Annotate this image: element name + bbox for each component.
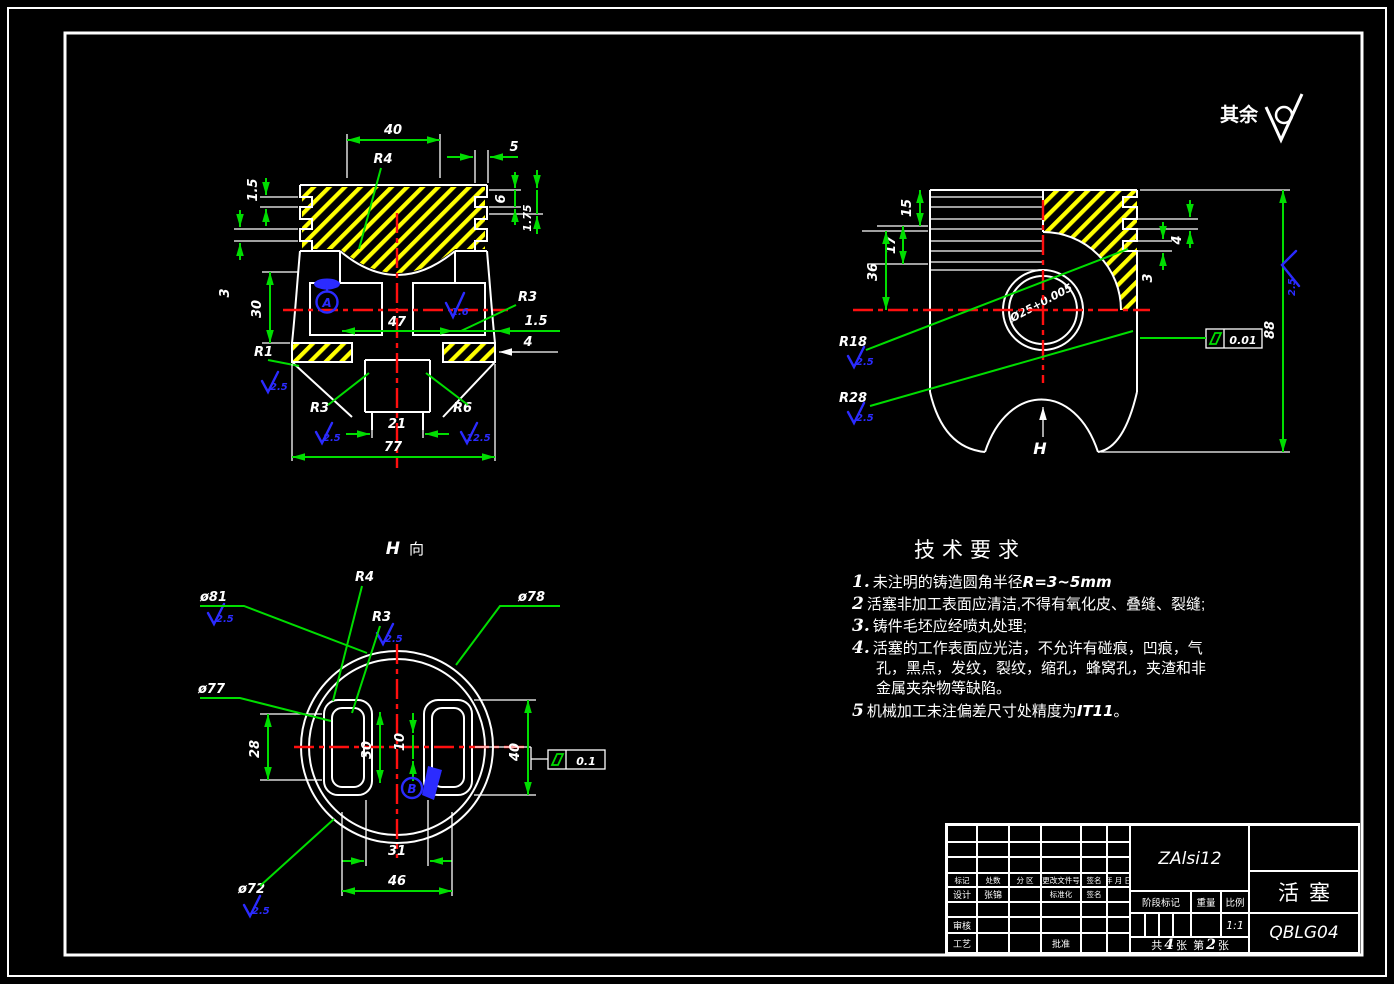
- tb-cell-empty: [1009, 825, 1041, 842]
- tb-cell-empty: [1009, 933, 1041, 953]
- dim-r1: R1: [254, 345, 273, 360]
- dim-15: 15: [900, 199, 915, 217]
- tb-drawing-number: QBLG04: [1248, 912, 1360, 953]
- tb-label-biaozhunhua: 标准化: [1041, 887, 1081, 902]
- tb-weight-cell: [1190, 912, 1222, 938]
- tb-cell-empty: [1081, 825, 1107, 842]
- tb-label-fenqu: 分 区: [1009, 873, 1041, 887]
- tb-total-sheets: 4: [1164, 937, 1174, 953]
- tb-label-qianming: 签名: [1081, 873, 1107, 887]
- tech-req-item: 2活塞非加工表面应清洁,不得有氧化皮、叠缝、裂缝;: [852, 594, 1208, 615]
- tb-cell-empty: [1041, 842, 1081, 857]
- tech-req-item: 4.活塞的工作表面应光洁，不允许有碰痕，凹痕，气孔，黑点，发纹，裂纹，缩孔，蜂窝…: [852, 638, 1208, 699]
- tb-cell-empty: [977, 825, 1009, 842]
- dim-phi78: ø78: [517, 590, 545, 605]
- tb-scale-value: 1:1: [1220, 912, 1250, 938]
- tolerance-frame: 0.1: [548, 750, 605, 769]
- tb-gong: 共: [1151, 937, 1162, 953]
- tb-cell-empty: [1107, 917, 1130, 933]
- tb-label-chushu: 处数: [977, 873, 1009, 887]
- h-view-title: H: [386, 539, 400, 559]
- tb-cell-empty: [1081, 842, 1107, 857]
- technical-requirements: 技术要求 1.未注明的铸造圆角半径R=3~5mm 2活塞非加工表面应清洁,不得有…: [852, 534, 1208, 723]
- dim-30: 30: [360, 741, 375, 759]
- tb-cell-empty: [977, 902, 1009, 917]
- tech-req-item: 1.未注明的铸造圆角半径R=3~5mm: [852, 572, 1208, 593]
- dim-31: 31: [388, 844, 406, 859]
- dim-40: 40: [383, 123, 402, 138]
- tb-part-name: 活塞: [1248, 870, 1360, 914]
- tb-cell-empty: [1081, 917, 1107, 933]
- tb-cell-empty: [1107, 857, 1130, 873]
- dim-5: 5: [509, 140, 518, 155]
- tb-label-shenhe: 审核: [947, 917, 977, 933]
- datum-letter: A: [321, 296, 331, 310]
- tb-cell-empty: [1009, 887, 1041, 902]
- tb-label-wenjianhao: 更改文件号: [1041, 873, 1081, 887]
- dim-3-left: 3: [218, 288, 233, 297]
- flatness-icon: [1210, 333, 1221, 344]
- roughness-value: 2.5: [252, 906, 270, 917]
- dim-40: 40: [508, 743, 523, 762]
- tb-cell-empty: [1081, 857, 1107, 873]
- tech-req-title: 技术要求: [914, 534, 1208, 564]
- tb-cell-empty: [947, 857, 977, 873]
- dim-phi77: ø77: [197, 682, 226, 697]
- roughness-value: 2.5: [270, 382, 288, 393]
- inner-border: [65, 33, 1362, 955]
- roughness-value: 2.5: [856, 357, 874, 368]
- dim-r4: R4: [355, 570, 374, 585]
- item-em: IT11: [1077, 702, 1114, 720]
- dim-r3-bottom: R3: [310, 401, 329, 416]
- tb-cell-empty: [1041, 825, 1081, 842]
- item-text: 机械加工未注偏差尺寸处精度为: [867, 703, 1077, 720]
- item-number: 5: [852, 701, 864, 721]
- dim-88: 88: [1263, 321, 1278, 339]
- tb-cell-empty: [1107, 933, 1130, 953]
- dim-3: 3: [1141, 273, 1156, 282]
- front-section-view: 40 R4 5 6 1.75 1.5 3 30 47 1.5: [218, 123, 560, 468]
- tech-req-item: 3.铸件毛坯应经喷丸处理;: [852, 616, 1208, 637]
- tolerance-value: 0.1: [576, 755, 596, 768]
- tb-label-zhongliang: 重量: [1190, 890, 1222, 914]
- tb-zhang: 张: [1176, 937, 1187, 953]
- tb-cell-empty: [1107, 842, 1130, 857]
- item-text: 活塞非加工表面应清洁,不得有氧化皮、叠缝、裂缝;: [867, 596, 1205, 613]
- h-direction-view: H 向 28 30 10 40 31 46 ø81: [197, 539, 605, 917]
- dim-r3-right: R3: [518, 290, 537, 305]
- roughness-value: 2.5: [856, 413, 874, 424]
- tb-cell-empty: [977, 933, 1009, 953]
- roughness-value: 2.5: [216, 614, 234, 625]
- datum-letter: B: [407, 782, 416, 796]
- tb-stage-box: [1172, 912, 1192, 938]
- item-tail: 。: [1114, 703, 1129, 720]
- tb-cell-empty: [1107, 902, 1130, 917]
- title-block: 标记处数分 区更改文件号签名年 月 日 设计张锦标准化签名 审核 工艺批准 ZA…: [945, 823, 1360, 955]
- h-view-title-suffix: 向: [409, 541, 424, 558]
- tb-cell-empty: [977, 842, 1009, 857]
- tb-cell-empty: [977, 917, 1009, 933]
- tolerance-frame: 0.01: [1140, 329, 1262, 348]
- cad-sheet: 其余 40 R4 5 6 1.75: [0, 0, 1394, 984]
- tb-label-pizhun: 批准: [1041, 933, 1081, 953]
- tb-cell-empty: [1009, 857, 1041, 873]
- roughness-value: 2.5: [1287, 278, 1298, 296]
- surface-roughness-note: 其余: [1220, 94, 1302, 140]
- item-number: 1.: [852, 572, 870, 592]
- tb-cell-empty: [947, 825, 977, 842]
- roughness-value: 12.5: [466, 433, 491, 444]
- dim-r6-bottom: R6: [453, 401, 472, 416]
- tb-cell-empty: [1009, 902, 1041, 917]
- tb-cell-empty: [947, 902, 977, 917]
- item-em: R=3~5mm: [1023, 573, 1112, 591]
- roughness-check-icon: [1266, 94, 1302, 140]
- tb-sheet-number: 2: [1206, 937, 1216, 953]
- dim-1_5-left: 1.5: [246, 178, 261, 201]
- tb-cell-empty: [977, 857, 1009, 873]
- datum-a-symbol: A: [314, 279, 340, 313]
- dim-21: 21: [388, 417, 406, 432]
- tb-cell-empty: [1081, 933, 1107, 953]
- side-section-view: Ø25+0.005 15 17 36 4 3 88 0.01 2.5: [839, 190, 1299, 458]
- item-text: 未注明的铸造圆角半径: [873, 574, 1023, 591]
- dim-10: 10: [393, 733, 408, 751]
- dim-r4: R4: [373, 152, 392, 167]
- dim-1_75: 1.75: [521, 204, 534, 231]
- tb-cell-empty: [1009, 917, 1041, 933]
- dim-28: 28: [248, 740, 263, 758]
- item-number: 3.: [852, 616, 870, 636]
- dim-4: 4: [1170, 235, 1185, 245]
- roughness-value: 2.5: [323, 433, 341, 444]
- tb-blank-cell: [1248, 825, 1360, 872]
- tb-cell-empty: [1009, 842, 1041, 857]
- dim-77: 77: [384, 440, 403, 455]
- dim-1_5-right: 1.5: [524, 314, 547, 329]
- tb-label-biaoji: 标记: [947, 873, 977, 887]
- tb-designer-name: 张锦: [977, 887, 1009, 902]
- revision-table: 标记处数分 区更改文件号签名年 月 日 设计张锦标准化签名 审核 工艺批准: [947, 825, 1130, 953]
- tb-label-bili: 比例: [1220, 890, 1250, 914]
- tb-sheet-count: 共4张 第2张: [1130, 936, 1250, 953]
- roughness-value: 1.6: [451, 307, 469, 318]
- tb-cell-empty: [1041, 902, 1081, 917]
- dim-36: 36: [866, 263, 881, 281]
- view-direction-label: H: [1033, 439, 1047, 458]
- item-text: 活塞的工作表面应光洁，不允许有碰痕，凹痕，气孔，黑点，发纹，裂纹，缩孔，蜂窝孔，…: [873, 640, 1206, 697]
- roughness-circle-icon: [1276, 107, 1292, 123]
- dim-46: 46: [387, 874, 406, 889]
- flatness-icon: [552, 754, 563, 765]
- tb-cell-empty: [1041, 917, 1081, 933]
- tolerance-value: 0.01: [1229, 334, 1256, 347]
- tb-cell-empty: [1041, 857, 1081, 873]
- dim-30: 30: [250, 300, 265, 318]
- tb-material: ZAlsi12: [1130, 825, 1250, 892]
- tb-label-sheji: 设计: [947, 887, 977, 902]
- tb-label-gongyi: 工艺: [947, 933, 977, 953]
- tb-cell-empty: [1081, 902, 1107, 917]
- dim-r3: R3: [372, 610, 391, 625]
- tb-di: 第: [1193, 937, 1204, 953]
- dim-47: 47: [387, 315, 407, 330]
- tb-label-riqi: 年 月 日: [1107, 873, 1130, 887]
- dim-phi81: ø81: [199, 590, 227, 605]
- dim-4-right: 4: [522, 335, 532, 350]
- tb-cell-empty: [1107, 887, 1130, 902]
- tb-label-qianming2: 签名: [1081, 887, 1107, 902]
- item-number: 2: [852, 594, 864, 614]
- tb-label-jieduan: 阶段标记: [1130, 890, 1192, 914]
- item-text: 铸件毛坯应经喷丸处理;: [873, 618, 1027, 635]
- tb-cell-empty: [947, 842, 977, 857]
- item-number: 4.: [852, 638, 870, 658]
- roughness-value: 2.5: [385, 634, 403, 645]
- tech-req-item: 5机械加工未注偏差尺寸处精度为IT11。: [852, 701, 1208, 722]
- tb-zhang2: 张: [1218, 937, 1229, 953]
- qiyu-label: 其余: [1220, 103, 1259, 126]
- tb-cell-empty: [1107, 825, 1130, 842]
- dim-6: 6: [494, 194, 509, 203]
